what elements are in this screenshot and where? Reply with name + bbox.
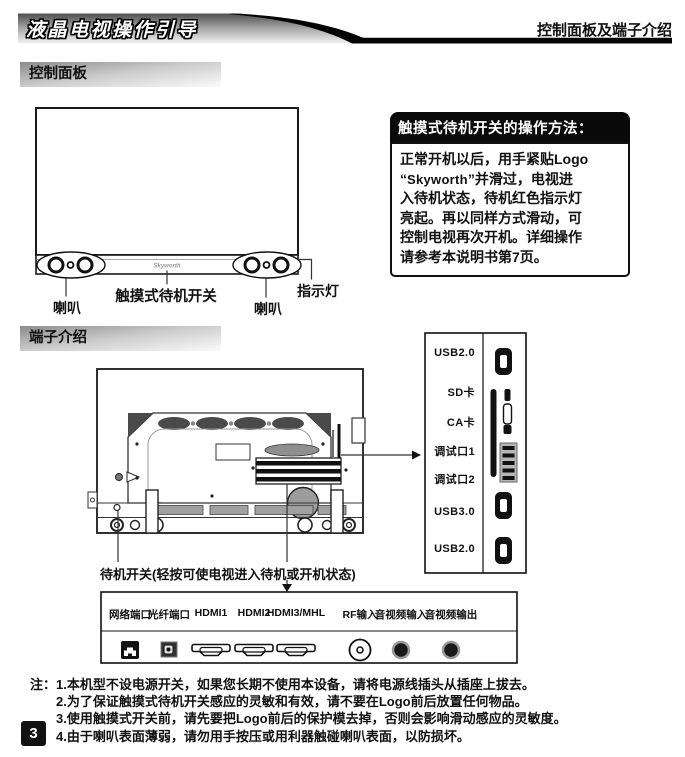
note-item-1: 1.本机型不设电源开关，如果您长期不使用本设备，请将电源线插头从插座上拔去。 [56,676,678,693]
label-speaker-left: 喇叭 [40,298,94,318]
section-title-control-panel: 控制面板 [20,62,221,87]
skyworth-logo-text: Skyworth [407,172,468,187]
bottom-panel-box [101,592,517,663]
side-label-usb2-bottom: USB2.0 [425,543,475,555]
open-quote: “ [400,171,407,187]
arrow-to-side-panel [412,451,421,460]
instruction-box-body: 正常开机以后，用手紧贴Logo “Skyworth”并滑过，电视进 入待机状态，… [390,142,630,277]
av-input-icon [393,642,409,658]
banner-title: 液晶电视操作引导 [26,15,198,42]
note-item-3: 3.使用触摸式开关前，请先要把Logo前后的保护模去掉，否则会影响滑动感应的灵敏… [56,710,678,727]
side-label-usb3: USB3.0 [425,506,475,518]
port-label-hdmi3-mhl: HDMI3/MHL [258,607,334,619]
model-label-plate [216,444,250,460]
connector-block [256,458,341,484]
front-tv-diagram: Skyworth [36,108,312,297]
note-item-2: 2.为了保证触摸式待机开关感应的灵敏和有效，请不要在Logo前后放置任何物品。 [56,693,678,710]
side-label-usb2-top: USB2.0 [425,347,475,359]
label-standby-switch: 待机开关(轻按可使电视进入待机或开机状态) [100,564,356,583]
manual-page: { "header": { "banner_title": "液晶电视操作引导"… [0,0,685,757]
instruction-line-3: 入待机状态，待机红色指示灯 [400,189,620,209]
back-tv-diagram [88,369,421,592]
side-label-debug2: 调试口2 [425,471,475,487]
label-touch-standby-switch: 触摸式待机开关 [96,285,236,306]
rf-input-icon [350,640,371,661]
side-label-ca-card: CA卡 [425,414,475,430]
speaker-right-drawing [233,252,301,278]
instruction-line-1: 正常开机以后，用手紧贴Logo [400,150,620,170]
arrow-to-bottom-panel [282,584,292,592]
notes-items: 1.本机型不设电源开关，如果您长期不使用本设备，请将电源线插头从插座上拔去。 2… [56,676,678,745]
optical-port-icon [161,642,177,657]
ethernet-port-icon [121,641,139,659]
page-subject: 控制面板及端子介绍 [480,19,672,40]
instruction-line-2: “Skyworth”并滑过，电视进 [400,170,620,190]
side-port-strip [265,444,319,456]
port-label-av-output: 音视频输出 [423,607,479,622]
side-label-sd-card: SD卡 [425,384,475,400]
notes-block: 注： 1.本机型不设电源开关，如果您长期不使用本设备，请将电源线插头从插座上拔去… [30,676,678,745]
speaker-left-drawing [37,252,105,278]
note-item-4: 4.由于喇叭表面薄弱，请勿用手按压或用利器触碰喇叭表面，以防损坏。 [56,728,678,745]
instruction-line-4: 亮起。再以同样方式滑动，可 [400,209,620,229]
label-speaker-right: 喇叭 [241,299,295,319]
side-label-debug1: 调试口1 [425,443,475,459]
standby-switch-dot [114,505,120,511]
usb3-port-icon [495,492,512,519]
instruction-box-title: 触摸式待机开关的操作方法： [390,112,630,142]
debug-pin-header-icon [500,443,517,482]
av-output-icon [443,642,459,658]
instruction-line-6: 请参考本说明书第7页。 [400,248,620,268]
section-title-ports: 端子介绍 [20,326,221,351]
line2-rest: ”并滑过，电视进 [468,171,573,187]
port-label-av-input: 音视频输入 [373,607,429,622]
usb2-port-bottom-icon [495,537,512,564]
standby-instruction-box: 触摸式待机开关的操作方法： 正常开机以后，用手紧贴Logo “Skyworth”… [390,112,630,277]
instruction-line-5: 控制电视再次开机。详细操作 [400,228,620,248]
usb2-port-top-icon [495,348,512,375]
tv-logo: Skyworth [153,264,180,270]
page-number-badge: 3 [21,721,46,746]
label-indicator-light: 指示灯 [297,281,339,301]
